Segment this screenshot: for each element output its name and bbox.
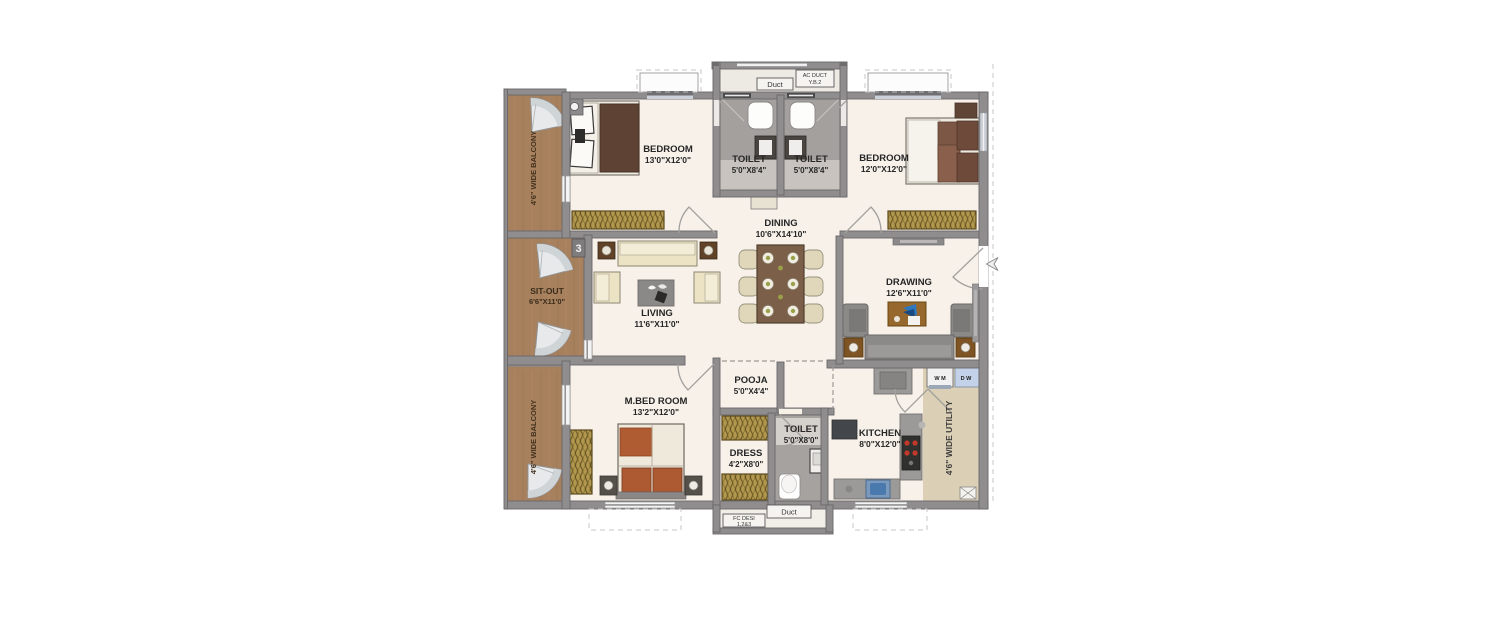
svg-text:3: 3 <box>575 243 581 255</box>
svg-text:10'6"X14'10": 10'6"X14'10" <box>756 229 807 239</box>
svg-text:DRESS: DRESS <box>730 448 763 459</box>
svg-text:DINING: DINING <box>764 218 797 229</box>
svg-text:4'6" WIDE UTILITY: 4'6" WIDE UTILITY <box>944 400 954 475</box>
svg-text:BEDROOM: BEDROOM <box>643 144 693 155</box>
svg-text:TOILET: TOILET <box>732 154 766 165</box>
svg-text:5'0"X8'0": 5'0"X8'0" <box>784 436 819 445</box>
svg-text:Duct: Duct <box>767 80 783 89</box>
svg-text:AC DUCT: AC DUCT <box>803 73 828 79</box>
svg-text:W M: W M <box>934 376 946 382</box>
svg-text:11'6"X11'0": 11'6"X11'0" <box>634 319 679 329</box>
svg-text:5'0"X4'4": 5'0"X4'4" <box>734 387 769 396</box>
svg-text:BEDROOM: BEDROOM <box>859 153 909 164</box>
svg-text:6'6"X11'0": 6'6"X11'0" <box>529 297 566 306</box>
svg-text:TOILET: TOILET <box>784 424 818 435</box>
svg-text:13'0"X12'0": 13'0"X12'0" <box>645 155 691 165</box>
svg-text:4'2"X8'0": 4'2"X8'0" <box>729 460 764 469</box>
svg-text:LIVING: LIVING <box>641 308 673 319</box>
svg-text:Duct: Duct <box>781 508 797 517</box>
svg-text:4'6" WIDE BALCONY: 4'6" WIDE BALCONY <box>529 131 538 206</box>
svg-text:M.BED ROOM: M.BED ROOM <box>625 396 688 407</box>
svg-text:12'0"X12'0": 12'0"X12'0" <box>861 164 907 174</box>
svg-text:TOILET: TOILET <box>794 154 828 165</box>
svg-text:13'2"X12'0": 13'2"X12'0" <box>633 407 679 417</box>
svg-text:5'0"X8'4": 5'0"X8'4" <box>732 166 767 175</box>
svg-text:5'0"X8'4": 5'0"X8'4" <box>794 166 829 175</box>
svg-text:POOJA: POOJA <box>734 375 767 386</box>
svg-text:DRAWING: DRAWING <box>886 277 932 288</box>
svg-text:D W: D W <box>961 376 973 382</box>
svg-text:12'6"X11'0": 12'6"X11'0" <box>886 288 932 298</box>
svg-text:1,2&3: 1,2&3 <box>737 522 751 528</box>
svg-text:Y.B.2: Y.B.2 <box>809 80 822 86</box>
svg-text:KITCHEN: KITCHEN <box>859 428 901 439</box>
svg-text:SIT-OUT: SIT-OUT <box>530 286 564 296</box>
svg-text:8'0"X12'0": 8'0"X12'0" <box>859 439 900 449</box>
svg-text:4'6" WIDE BALCONY: 4'6" WIDE BALCONY <box>529 400 538 475</box>
